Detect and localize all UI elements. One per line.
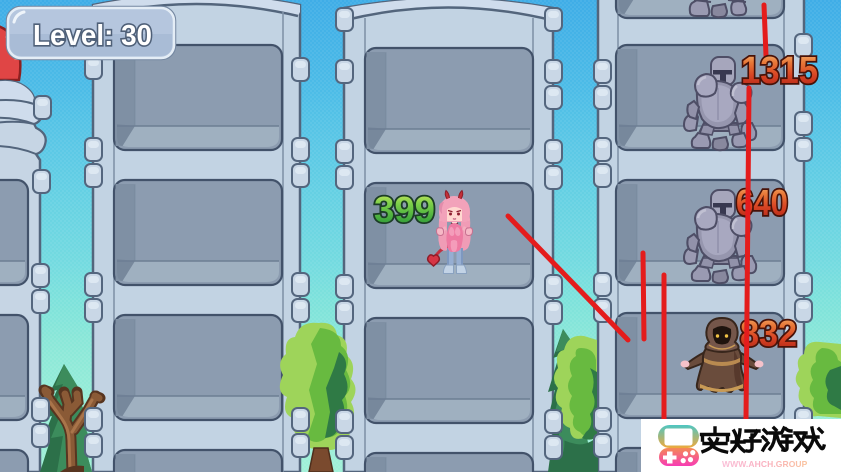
svg-text:1315: 1315: [741, 50, 818, 92]
svg-text:WWW.AHCH.GROUP: WWW.AHCH.GROUP: [722, 459, 808, 469]
svg-text:399: 399: [374, 189, 435, 230]
svg-text:640: 640: [736, 182, 788, 223]
svg-text:Level: 30: Level: 30: [33, 20, 152, 52]
